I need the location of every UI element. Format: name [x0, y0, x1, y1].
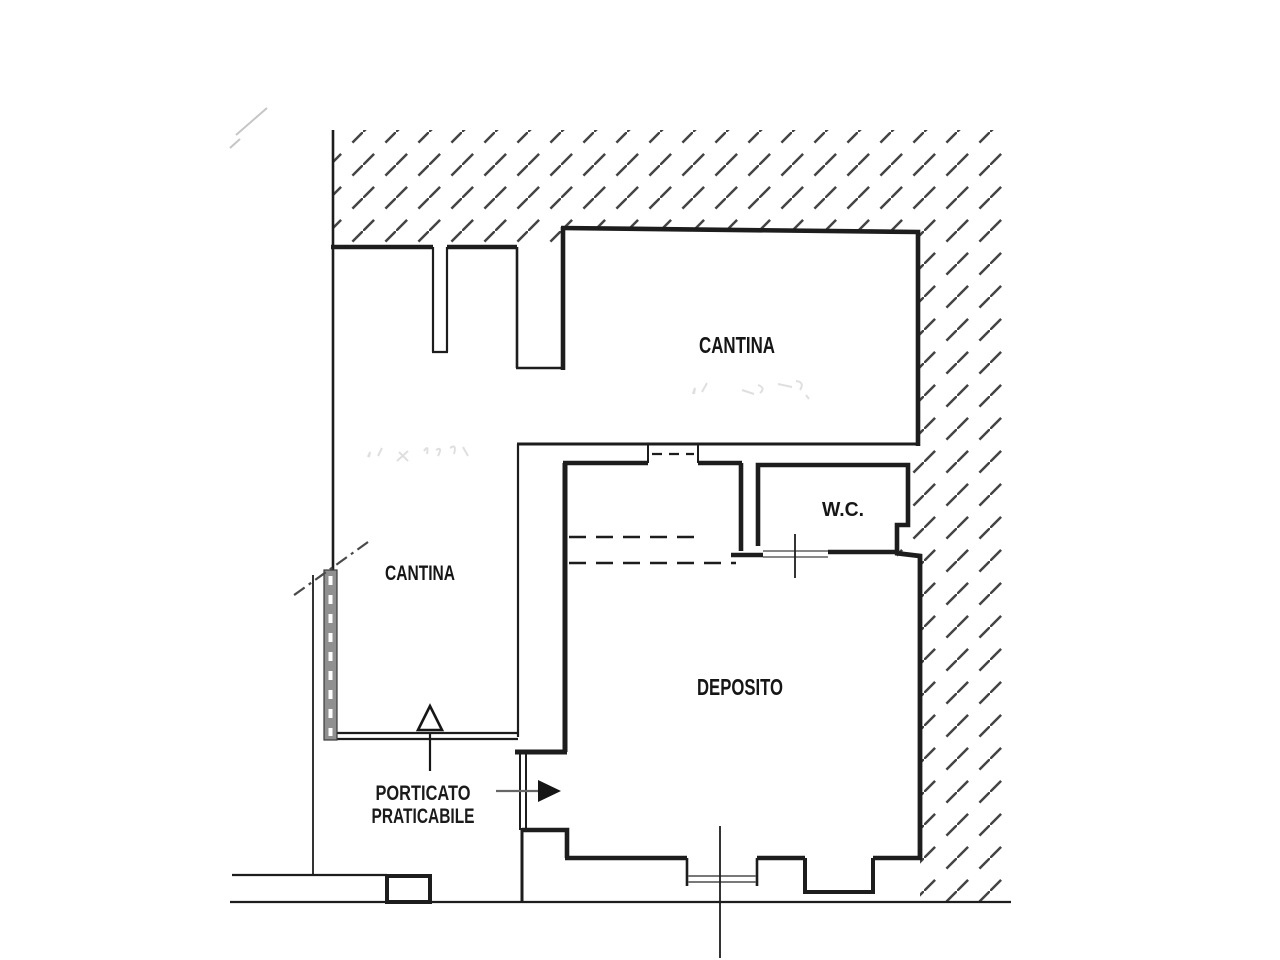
porch-pillar — [387, 876, 430, 902]
left-cantina-bottom-wall — [330, 733, 518, 739]
faint-scan-mark — [230, 108, 267, 148]
deposito-top-right-wall — [895, 553, 920, 858]
room-label-wc: W.C. — [822, 499, 864, 521]
room-label-cantina-left: CANTINA — [385, 562, 455, 585]
walls-group — [230, 130, 1011, 958]
room-label-cantina-upper: CANTINA — [699, 332, 775, 358]
recess-niche — [516, 247, 563, 368]
floor-plan-drawing: CANTINA CANTINA W.C. DEPOSITO PORTICATO … — [0, 0, 1280, 960]
flue-slot — [432, 247, 448, 352]
up-triangle-icon — [418, 706, 442, 730]
porticato-label-line2: PRATICABILE — [372, 805, 475, 828]
pencil-marks — [368, 381, 809, 461]
entrance-arrow — [496, 780, 561, 802]
scanned-floor-plan-page: CANTINA CANTINA W.C. DEPOSITO PORTICATO … — [0, 0, 1280, 960]
porticato-label-line1: PORTICATO — [376, 782, 471, 805]
right-arrow-icon — [538, 780, 561, 802]
room-label-deposito: DEPOSITO — [697, 674, 783, 700]
bottom-wall-notch — [805, 858, 873, 892]
deposito-bottom-left-step — [522, 830, 567, 858]
bottom-door-lines — [688, 876, 756, 882]
